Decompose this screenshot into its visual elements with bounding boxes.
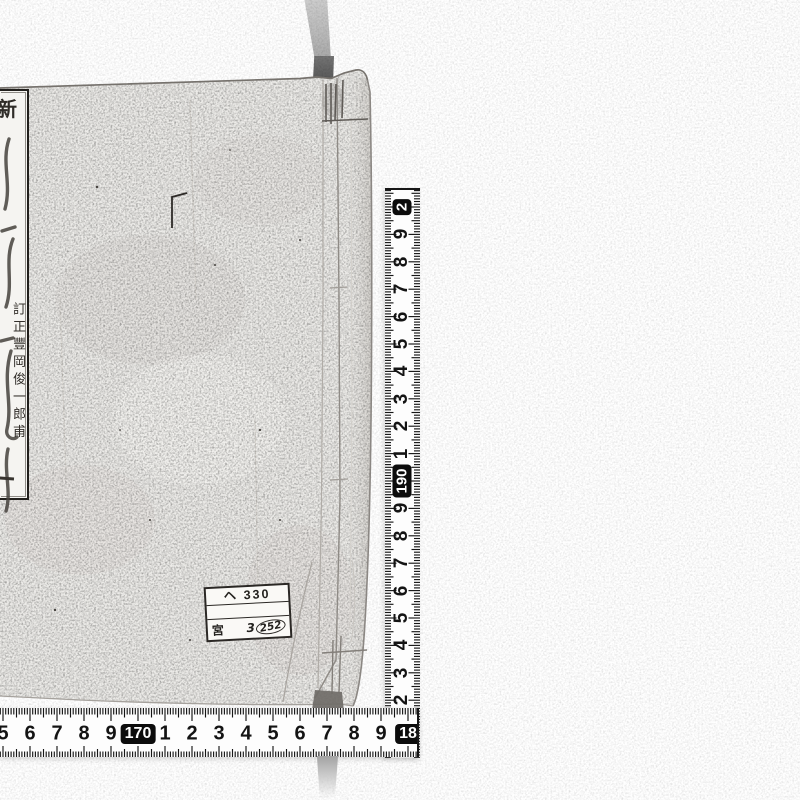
title-slip-header-char: 新 [0, 93, 17, 122]
ruler-number: 6 [391, 311, 413, 322]
ruler-number: 4 [391, 640, 413, 651]
ruler-number: 3 [391, 394, 413, 405]
ruler-number: 6 [24, 723, 35, 746]
ruler-number: 1 [391, 448, 413, 459]
ruler-number: 18 [395, 724, 419, 744]
call-number-prefix: 宮 [211, 621, 224, 639]
call-number-handwritten-circled: 252 [255, 617, 287, 636]
ruler-number: 5 [0, 723, 9, 746]
ruler-number: 8 [391, 531, 413, 542]
ruler-number: 190 [393, 464, 412, 497]
digitized-book-photo: 新 訂正豐岡俊一郎甫 ヘ 330 宮 3 252 298765432119098… [0, 0, 800, 800]
ruler-number: 9 [105, 723, 116, 746]
title-slip: 新 訂正豐岡俊一郎甫 [0, 89, 29, 500]
ruler-number: 170 [121, 724, 156, 744]
ruler-number: 7 [51, 723, 62, 746]
ruler-number: 5 [391, 613, 413, 624]
ruler-number: 9 [391, 503, 413, 514]
ruler-number: 7 [391, 558, 413, 569]
ruler-number: 9 [375, 723, 386, 746]
call-number-label: ヘ 330 宮 3 252 [204, 583, 293, 642]
ruler-number: 3 [213, 723, 224, 746]
vertical-tape-measure: 298765432119098765432 [385, 188, 420, 758]
ruler-number: 9 [391, 229, 413, 240]
ruler-number: 2 [393, 199, 412, 215]
horizontal-tape-measure: 5678917012345678918 [0, 708, 419, 757]
ruler-number: 5 [391, 339, 413, 350]
ruler-number: 8 [78, 723, 89, 746]
ruler-number: 6 [391, 585, 413, 596]
call-number-row3: 宮 3 252 [207, 616, 290, 640]
ruler-number: 2 [391, 695, 413, 706]
ruler-number: 4 [391, 366, 413, 377]
call-number-handwritten-lead: 3 [246, 621, 255, 635]
ruler-number: 8 [348, 723, 359, 746]
ruler-number: 7 [391, 284, 413, 295]
ruler-number: 5 [267, 723, 278, 746]
ruler-number: 7 [321, 723, 332, 746]
ruler-number: 4 [240, 723, 251, 746]
ruler-number: 2 [391, 421, 413, 432]
ruler-number: 1 [159, 723, 170, 746]
ruler-number: 6 [294, 723, 305, 746]
ruler-number: 2 [186, 723, 197, 746]
title-slip-annotation-column: 訂正豐岡俊一郎甫 [12, 302, 25, 442]
ruler-number: 8 [391, 257, 413, 268]
ruler-number: 3 [391, 668, 413, 679]
